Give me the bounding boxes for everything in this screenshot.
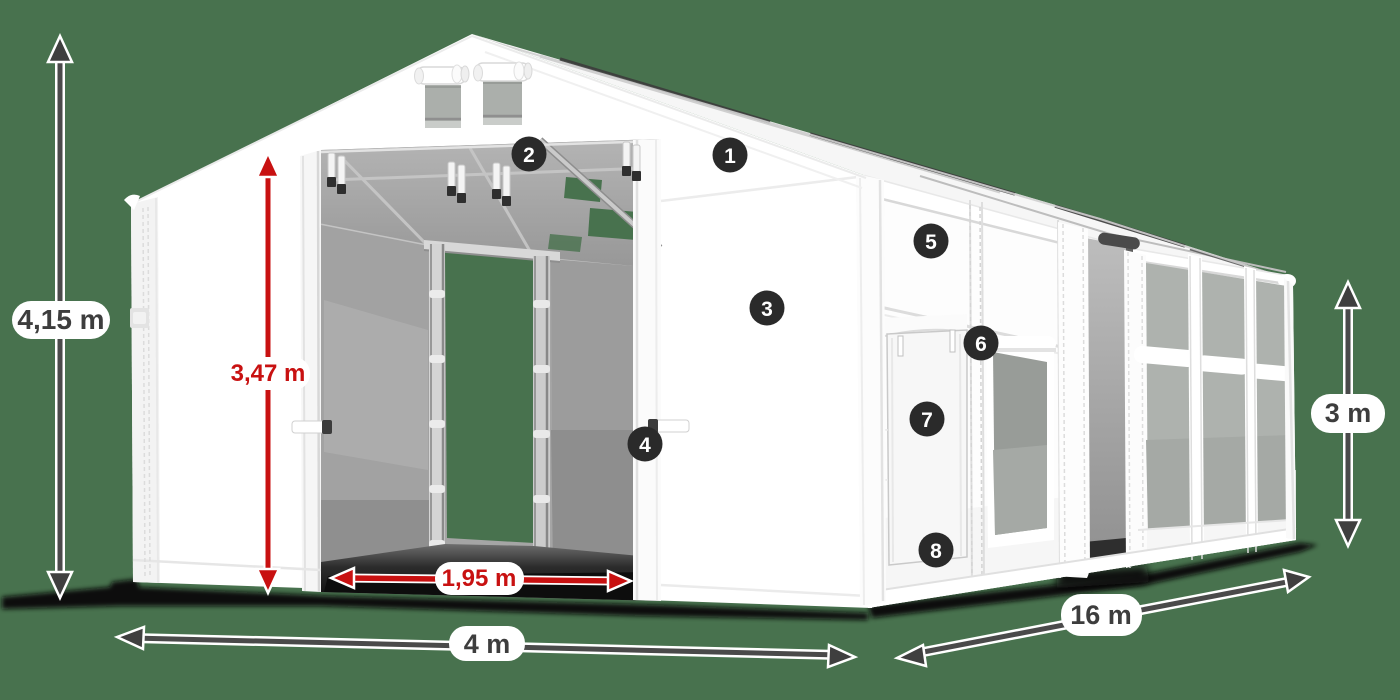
svg-text:6: 6 bbox=[975, 333, 987, 356]
svg-text:1,95 m: 1,95 m bbox=[442, 565, 517, 592]
svg-text:3,47 m: 3,47 m bbox=[231, 360, 306, 387]
svg-text:4,15 m: 4,15 m bbox=[17, 304, 104, 335]
svg-text:3: 3 bbox=[761, 298, 773, 321]
svg-text:16 m: 16 m bbox=[1070, 600, 1132, 630]
svg-text:1: 1 bbox=[724, 145, 736, 168]
svg-text:2: 2 bbox=[523, 144, 535, 167]
svg-text:5: 5 bbox=[925, 231, 937, 254]
svg-text:3 m: 3 m bbox=[1325, 398, 1372, 428]
svg-text:8: 8 bbox=[930, 540, 942, 563]
svg-text:4: 4 bbox=[639, 434, 651, 457]
svg-text:4 m: 4 m bbox=[464, 629, 511, 659]
svg-text:7: 7 bbox=[921, 409, 933, 432]
